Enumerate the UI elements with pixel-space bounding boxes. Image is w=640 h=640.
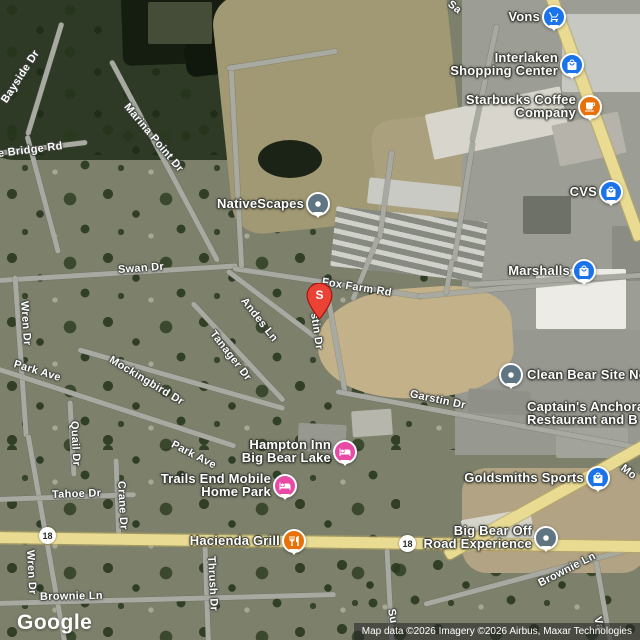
poi-label-cvs[interactable]: CVS [570, 185, 597, 198]
highway-shield: 18 [39, 527, 56, 544]
road-label: Wren Dr [24, 550, 38, 595]
poi-pin-hampton-inn-big-bear-lake[interactable] [333, 440, 357, 464]
search-result-marker[interactable]: S [306, 283, 333, 319]
poi-label-line: Company [466, 106, 576, 119]
poi-pin-cvs[interactable] [599, 180, 623, 204]
poi-pin-marshalls[interactable] [572, 259, 596, 283]
poi-pin-big-bear-off-road-experience[interactable] [534, 526, 558, 550]
bed-icon [279, 480, 291, 492]
bed-icon [339, 446, 351, 458]
terrain-pond [258, 140, 322, 178]
highway-shield: 18 [399, 535, 416, 552]
shopping-bag-icon [578, 265, 590, 277]
building [523, 196, 571, 234]
google-logo[interactable]: Google [17, 611, 92, 635]
road-label: Quail Dr [68, 421, 82, 467]
road-label: Crane Dr [115, 481, 130, 530]
poi-label-line: Goldsmiths Sports [464, 471, 584, 484]
poi-pin-goldsmiths-sports[interactable] [586, 466, 610, 490]
building [351, 409, 393, 438]
poi-label-nativescapes[interactable]: NativeScapes [217, 197, 304, 210]
poi-pin-nativescapes[interactable] [306, 192, 330, 216]
poi-label-trails-end-mobile-home-park[interactable]: Trails End MobileHome Park [161, 472, 271, 498]
poi-pin-vons[interactable] [542, 5, 566, 29]
map-canvas[interactable]: SaBayside DrMarina Point Dre Bridge RdSw… [0, 0, 640, 640]
poi-pin-clean-bear-site[interactable] [499, 363, 523, 387]
road-label: Su [385, 608, 399, 625]
restaurant-icon [288, 535, 300, 547]
poi-label-hacienda-grill[interactable]: Hacienda Grill [190, 534, 280, 547]
poi-pin-starbucks-coffee-company[interactable] [578, 95, 602, 119]
building [148, 2, 212, 44]
building [467, 388, 530, 415]
poi-pin-interlaken-shopping-center[interactable] [560, 53, 584, 77]
dot-icon [540, 532, 552, 544]
poi-label-clean-bear-site[interactable]: Clean Bear Site No [527, 368, 640, 381]
poi-label-line: Shopping Center [450, 64, 558, 77]
poi-label-line: Vons [508, 10, 540, 23]
poi-label-line: Home Park [161, 485, 271, 498]
poi-label-line: Restaurant and B [527, 413, 640, 426]
poi-label-marshalls[interactable]: Marshalls [508, 264, 570, 277]
shopping-bag-icon [566, 59, 578, 71]
road-label: Tahoe Dr [52, 487, 102, 501]
poi-label-goldsmiths-sports[interactable]: Goldsmiths Sports [464, 471, 584, 484]
shopping-cart-icon [548, 11, 560, 23]
poi-label-vons[interactable]: Vons [508, 10, 540, 23]
poi-label-line: Hacienda Grill [190, 534, 280, 547]
shopping-bag-icon [605, 186, 617, 198]
road-label: Brownie Ln [40, 590, 103, 603]
dot-icon [505, 369, 517, 381]
map-attribution: Map data ©2026 Imagery ©2026 Airbus, Max… [354, 623, 640, 640]
search-marker-letter: S [306, 288, 333, 302]
poi-label-line: NativeScapes [217, 197, 304, 210]
poi-label-starbucks-coffee-company[interactable]: Starbucks CoffeeCompany [466, 93, 576, 119]
poi-label-line: Clean Bear Site No [527, 368, 640, 381]
shopping-bag-icon [592, 472, 604, 484]
poi-label-line: Road Experience [424, 537, 533, 550]
poi-pin-trails-end-mobile-home-park[interactable] [273, 474, 297, 498]
coffee-cup-icon [584, 101, 596, 113]
poi-pin-hacienda-grill[interactable] [282, 529, 306, 553]
poi-label-hampton-inn-big-bear-lake[interactable]: Hampton InnBig Bear Lake [242, 438, 331, 464]
poi-label-interlaken-shopping-center[interactable]: InterlakenShopping Center [450, 51, 558, 77]
poi-label-captains-anchorage[interactable]: Captain's AnchoraRestaurant and B [527, 400, 640, 426]
poi-label-big-bear-off-road-experience[interactable]: Big Bear OffRoad Experience [424, 524, 533, 550]
poi-label-line: CVS [570, 185, 597, 198]
poi-label-line: Marshalls [508, 264, 570, 277]
poi-label-line: Big Bear Lake [242, 451, 331, 464]
dot-icon [312, 198, 324, 210]
